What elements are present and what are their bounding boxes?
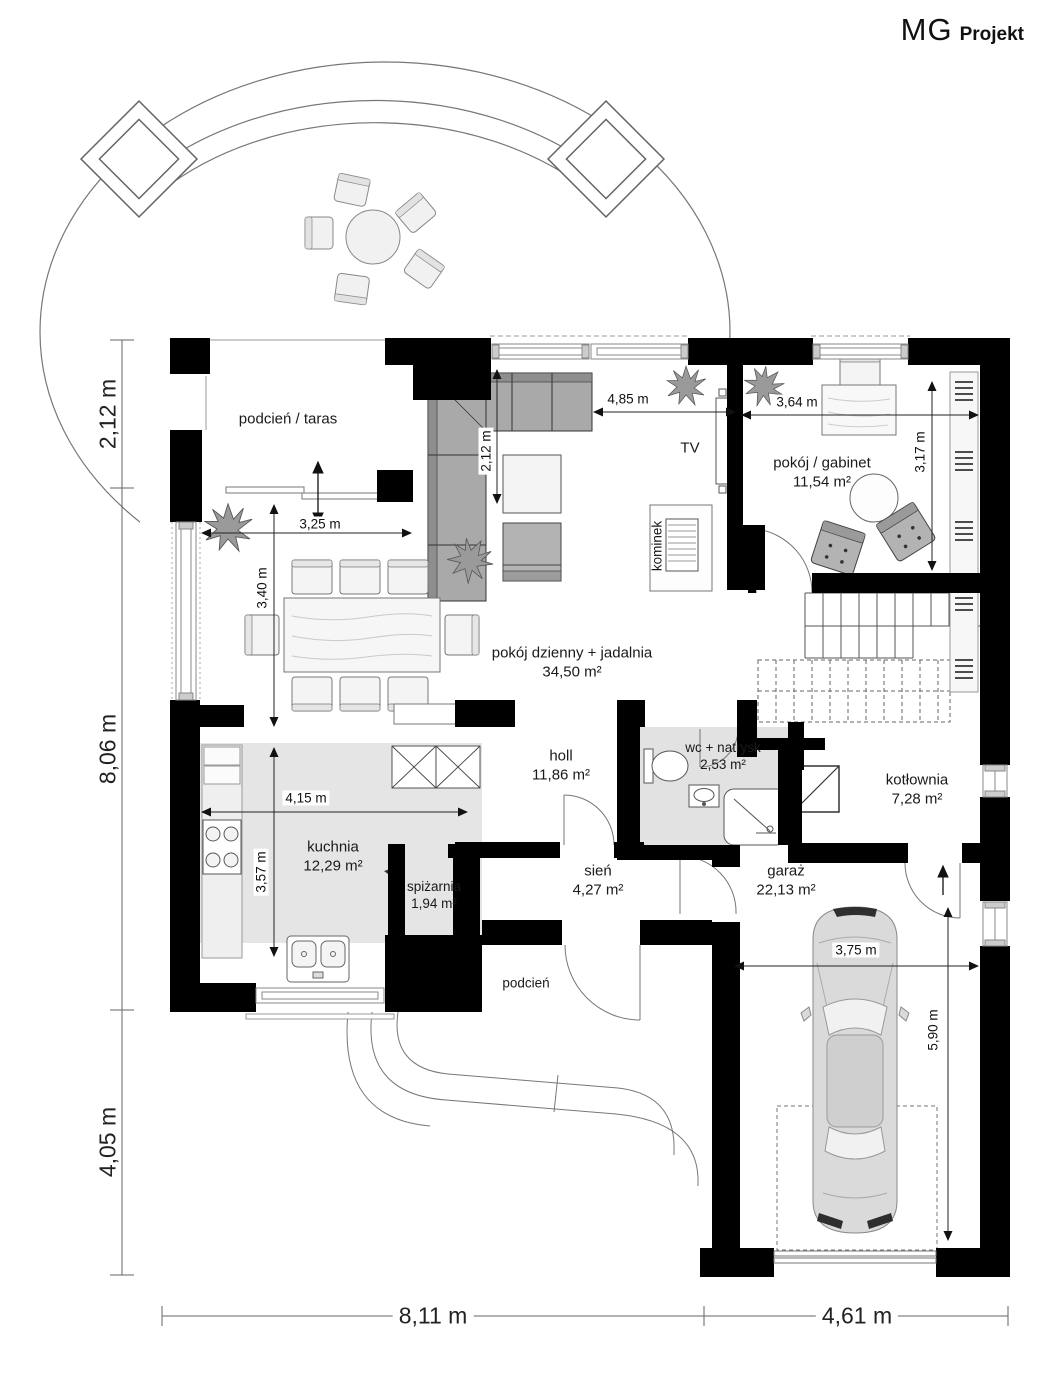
coffee-table [503,455,561,513]
room-label-holl: holl 11,86 m² [532,747,590,785]
kitchen-sink [287,936,349,982]
room-label-gabinet: pokój / gabinet 11,54 m² [773,454,871,492]
room-label-living: pokój dzienny + jadalnia 34,50 m² [492,644,653,682]
wardrobe-x [392,746,480,788]
terrace-table-set [305,173,445,305]
brand-logo-mg: MG [901,12,953,48]
brand-logo: MG Projekt [901,12,1024,48]
dim-dining-height: 3,40 m [255,564,270,611]
room-label-spizarnia: spiżarnia 1,94 m² [407,879,461,913]
dim-taras-width: 3,25 m [296,517,343,532]
dim-outer-bottom-right: 4,61 m [816,1303,898,1330]
dim-living-width: 4,85 m [604,392,651,407]
room-label-kotlownia: kotłownia 7,28 m² [886,771,949,809]
floor-plan-drawing [0,0,1050,1400]
label-tv: TV [680,440,699,459]
room-label-kuchnia: kuchnia 12,29 m² [303,838,362,876]
floor-plan: podcień / taras pokój dzienny + jadalnia… [0,0,1050,1400]
dim-outer-bottom-left: 8,11 m [393,1303,474,1330]
wc-sink [689,785,719,807]
brand-logo-projekt: Projekt [960,24,1024,46]
label-kominek: kominek [650,521,667,571]
dim-garaz-height: 5,90 m [926,1006,941,1053]
room-label-sien: sień 4,27 m² [573,862,624,900]
stove [203,820,241,874]
room-label-podcien: podcień [502,976,549,993]
room-label-taras: podcień / taras [239,411,337,430]
pergola-pillar-right [548,101,664,217]
toilet [644,749,688,783]
entry-steps [347,1012,698,1186]
pergola-pillar-left [81,101,197,217]
dim-kuchnia-width: 4,15 m [282,791,329,806]
dim-gabinet-height: 3,17 m [913,428,928,475]
room-label-garaz: garaż 22,13 m² [756,862,815,900]
radiator [950,372,978,692]
dim-outer-left-top: 2,12 m [95,373,122,455]
shower [724,789,786,845]
dim-kuchnia-height: 3,57 m [254,848,269,895]
ottoman [503,523,561,581]
dim-sofa-depth: 2,12 m [479,427,494,474]
dim-garaz-width: 3,75 m [832,943,879,958]
dim-gabinet-width: 3,64 m [773,395,820,410]
room-label-wc: wc + natrysk 2,53 m² [685,740,760,774]
dim-outer-left-bottom: 4,05 m [95,1101,122,1183]
dim-outer-left-mid: 8,06 m [95,708,122,790]
